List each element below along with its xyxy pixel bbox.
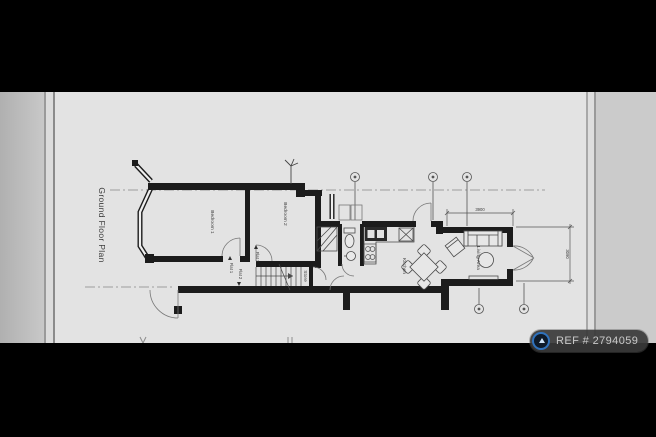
label-flat1-upper: Flat 1: [255, 252, 260, 263]
dining-table-icon: [401, 244, 447, 290]
appliance-icon: [399, 228, 413, 241]
kitchen-sink-icon: [365, 227, 387, 241]
house-logo-icon: [532, 332, 550, 350]
letterbox-top: [0, 0, 656, 92]
room-label-living-area: Living Area: [475, 246, 481, 270]
label-flat1-hall: Flat 1: [229, 263, 234, 274]
sofa-icon: [464, 231, 502, 246]
dimension-depth: 3090: [565, 249, 570, 259]
floorplan-photo: 3900 3090: [0, 0, 656, 437]
ref-watermark: REF # 2794059: [530, 330, 648, 352]
room-label-store: Store: [302, 270, 308, 282]
sideboard-icon: [469, 276, 498, 280]
armchair-icon: [445, 237, 465, 257]
letterbox-bottom: [0, 343, 656, 437]
basin-icon: [344, 252, 356, 261]
room-label-bedroom1: Bedroom 1: [209, 210, 215, 234]
toilet-icon: [344, 228, 355, 248]
flue-vent-icon: [285, 159, 298, 184]
ref-number: REF # 2794059: [556, 335, 638, 347]
dimension-width: 3900: [475, 207, 485, 212]
label-flat2-hall: Flat 2: [238, 269, 243, 280]
hob-icon: [364, 244, 376, 262]
room-label-bedroom2: Bedroom 2: [282, 202, 288, 226]
page-title: Ground Floor Plan: [97, 187, 107, 262]
windows: [136, 165, 332, 257]
room-label-kitchen: Kitchen: [401, 258, 407, 274]
